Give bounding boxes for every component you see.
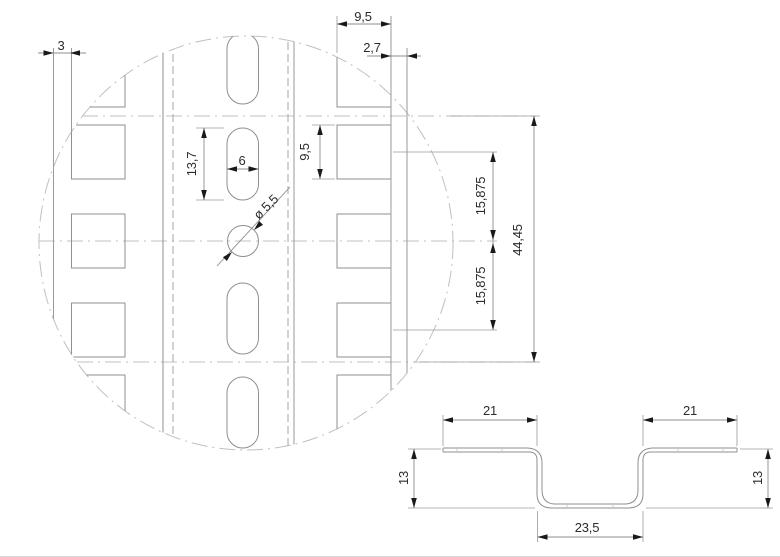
dim-label-edge-margin-left: 3 [57,38,64,53]
dim-label-flange-width-left: 21 [483,403,497,418]
dim-label-flange-width-right: 21 [683,403,697,418]
dim-label-hole-diameter: ø 5,5 [250,191,281,222]
dim-label-hole-pitch-upper: 15,875 [473,177,488,216]
dim-label-slot-length: 13,7 [184,152,199,177]
rail-top-view [72,30,392,460]
dim-label-height-right: 13 [750,471,765,485]
dim-hole-diameter: ø 5,5 [217,187,290,266]
technical-drawing: 3 9,5 2,7 13,7 6 9,5 [0,0,780,557]
dim-height-left: 13 [396,449,535,508]
dim-slot-column-width: 9,5 [337,9,391,27]
dim-label-slot-width: 6 [238,153,245,168]
dim-height-right: 13 [646,449,773,508]
dim-label-edge-margin-right: 2,7 [363,40,380,55]
dim-edge-margin-left: 3 [38,38,86,56]
rail-section-view [443,447,737,509]
dim-label-slot-column-width: 9,5 [354,9,371,24]
dim-flange-width-right: 21 [643,403,737,446]
dim-label-overall-length: 44,45 [510,224,525,256]
dim-slot-width: 6 [227,153,259,172]
drawing-canvas: 3 9,5 2,7 13,7 6 9,5 [0,0,780,557]
dim-label-square-hole-size: 9,5 [297,143,312,160]
dim-overall-length: 44,45 [420,116,540,362]
dim-edge-margin-right: 2,7 [363,40,421,59]
rail-edge-lines [54,16,408,390]
dim-slot-length: 13,7 [184,128,224,200]
dim-square-hole-size: 9,5 [297,125,335,179]
dim-label-base-width: 23,5 [575,520,600,535]
dim-flange-width-left: 21 [443,403,537,446]
dim-base-width: 23,5 [538,511,644,542]
section-hole-ticks [457,447,723,509]
dim-label-height-left: 13 [396,471,411,485]
dim-label-hole-pitch-lower: 15,875 [473,267,488,306]
